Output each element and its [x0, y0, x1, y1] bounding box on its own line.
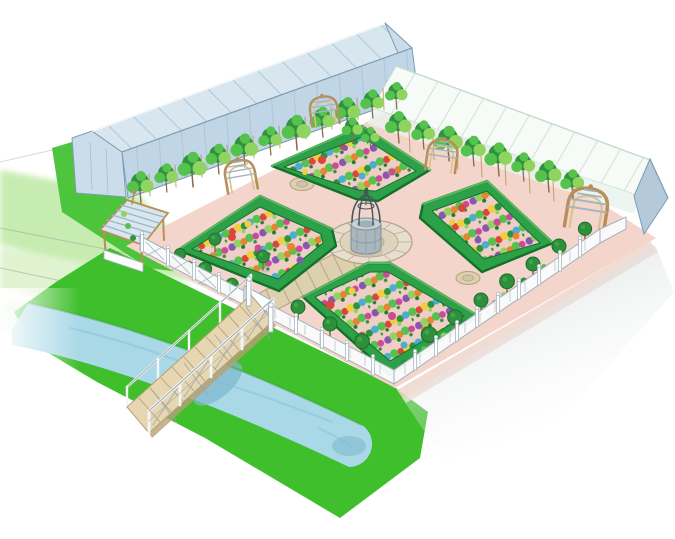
canal-end-shadow [332, 436, 366, 456]
garden-watercolor-illustration [0, 0, 675, 539]
illustration-canvas [0, 0, 675, 539]
